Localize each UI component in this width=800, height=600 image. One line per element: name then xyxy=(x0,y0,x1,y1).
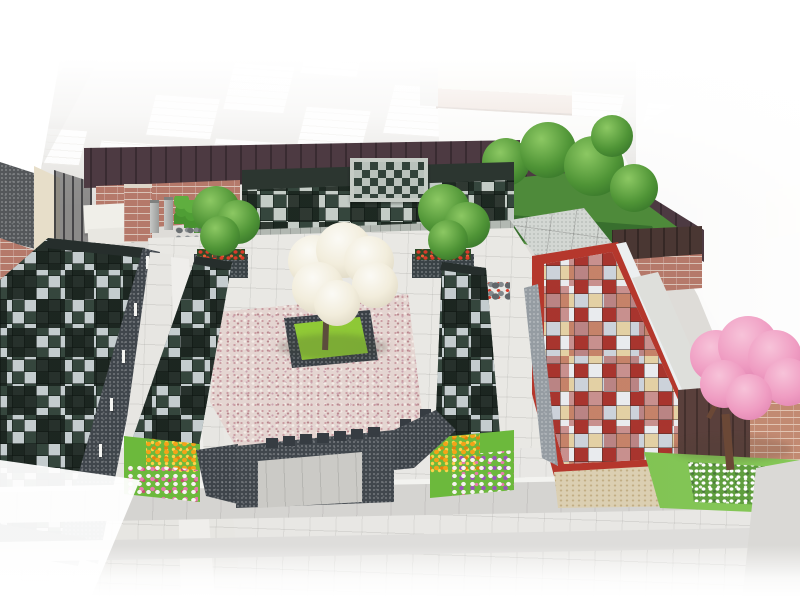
railing-post xyxy=(110,398,113,411)
planter-tree-left xyxy=(200,216,240,256)
crenellation-block xyxy=(317,433,329,443)
crenellation-block xyxy=(283,436,295,446)
planter-tree-right xyxy=(428,220,468,260)
dogwood-shadow xyxy=(278,334,388,360)
dogwood-canopy xyxy=(314,280,360,326)
railing-post xyxy=(99,444,102,457)
railing-post xyxy=(122,350,125,363)
railing-post xyxy=(134,303,137,316)
atmosphere-fade-bottom xyxy=(0,545,800,600)
cemetery-garden-rendering xyxy=(0,0,800,600)
central-monument xyxy=(350,158,428,202)
stone-pillar xyxy=(150,200,159,233)
garden-tree xyxy=(591,115,633,157)
crenellation-block xyxy=(300,434,312,444)
cherry-canopy xyxy=(726,374,772,420)
stone-pillar xyxy=(164,197,173,230)
entrance-brick-pillar xyxy=(124,184,152,242)
crenellation-block xyxy=(368,427,380,437)
garden-tree xyxy=(610,164,658,212)
crenellation-block xyxy=(351,429,363,439)
crenellation-block xyxy=(334,431,346,441)
crenellation-block xyxy=(266,438,278,448)
